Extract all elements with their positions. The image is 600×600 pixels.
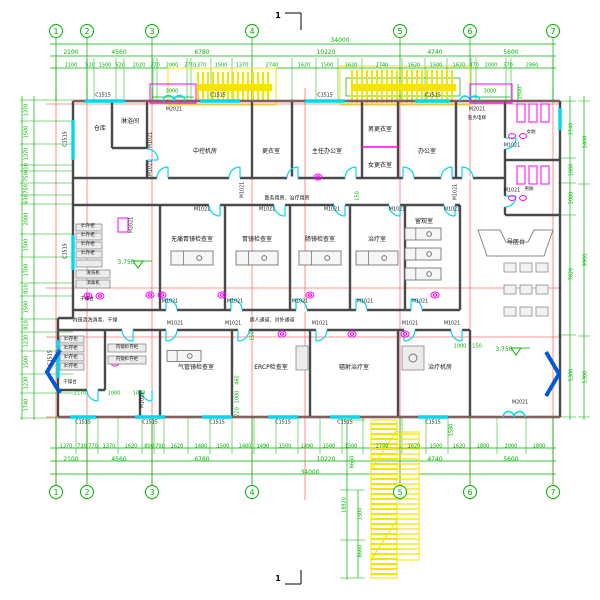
window-tag: C1515: [95, 95, 111, 100]
room-label: 治疗机房: [428, 365, 452, 371]
dim-label: 2170: [74, 392, 87, 397]
room-label: 淋浴间: [121, 119, 139, 125]
room-label: 中控机房: [193, 149, 217, 155]
door-tag: M1021: [162, 301, 178, 306]
equip-label: 消毒机: [86, 282, 100, 287]
dim-label: 1620: [408, 445, 421, 450]
dim-label: 1230: [25, 335, 30, 348]
dim-label: 4560: [111, 50, 126, 56]
axis-number: 2: [80, 24, 94, 38]
dim-label: 1500: [25, 239, 30, 252]
window-tag: C1515: [337, 422, 353, 427]
equip-label: 女厕: [527, 131, 536, 136]
dim-label: 1700: [25, 264, 30, 277]
dim-label: 1500: [99, 64, 112, 69]
dim-label: 3000: [166, 90, 179, 95]
room-label: 男更衣室: [368, 127, 392, 133]
dim-label: 750: [25, 172, 30, 182]
dim-label: 7820: [570, 268, 575, 281]
dim-label: 8660: [359, 545, 364, 558]
equip-label: 贮存柜: [81, 252, 95, 257]
equip-label: 贮存柜: [64, 347, 78, 352]
dim-label: 5400: [584, 136, 589, 149]
dim-label: 1500: [321, 64, 334, 69]
door-tag: M1021: [242, 182, 247, 198]
dim-label: 1800: [477, 445, 490, 450]
dim-label: 3740: [570, 123, 575, 136]
door-tag: M1021: [504, 145, 520, 150]
axis-number: 6: [463, 24, 477, 38]
door-tag: M1021: [312, 323, 328, 328]
axis-number: 5: [393, 485, 407, 499]
dim-label: 810: [25, 284, 30, 294]
dim-label: 520: [85, 64, 95, 69]
dim-label: 1620: [453, 64, 466, 69]
door-tag: M1021: [150, 160, 155, 176]
dim-label: 1370: [194, 64, 207, 69]
equip-label: 贮存柜: [81, 243, 95, 248]
equip-label: 贮存柜: [81, 225, 95, 230]
dim-label: 1620: [453, 445, 466, 450]
dim-label: 1500: [25, 356, 30, 369]
dim-label: 800: [144, 445, 154, 450]
elevation-label: 3.750: [117, 260, 134, 266]
room-label: 留观室: [415, 219, 433, 225]
door-tag: M1021: [142, 392, 147, 408]
dim-label: 6780: [194, 50, 209, 56]
axis-number: 2: [80, 485, 94, 499]
dim-label: 5600: [503, 457, 518, 463]
elevation-label: 3.750: [495, 347, 512, 353]
axis-number: 5: [393, 24, 407, 38]
dim-label: 1500: [25, 301, 30, 314]
door-tag: M1021: [504, 190, 520, 195]
dim-label: 2860: [526, 64, 539, 69]
dim-label: 1500: [217, 445, 230, 450]
window-tag: C1515: [275, 422, 291, 427]
window-tag: C1515: [65, 243, 70, 259]
dim-label: 220: [236, 407, 241, 417]
axis-number: 4: [245, 24, 259, 38]
dim-label: 2000: [505, 445, 518, 450]
dim-label: 750: [25, 184, 30, 194]
room-label: 仓库: [94, 126, 106, 132]
equip-label: 干燥台: [63, 381, 77, 386]
dim-label: 1230: [25, 377, 30, 390]
axis-number: 1: [49, 485, 63, 499]
dim-label: 1000: [236, 391, 241, 404]
dim-label: 1490: [257, 445, 270, 450]
door-tag: M2021: [131, 217, 136, 233]
window-tag: C1515: [65, 131, 70, 147]
dim-label: 1490: [301, 445, 314, 450]
dim-label: 1620: [345, 64, 358, 69]
dim-label: 1800: [533, 445, 546, 450]
dim-label: 2740: [376, 64, 389, 69]
dim-label: 2020: [133, 64, 146, 69]
dim-label: 1000: [108, 392, 121, 397]
door-tag: M1021: [324, 209, 340, 214]
axis-number: 7: [546, 24, 560, 38]
dim-label: 1370: [25, 104, 30, 117]
dim-label: 1500: [345, 445, 358, 450]
dim-label: 1500: [323, 445, 336, 450]
dim-label: 150: [251, 331, 256, 341]
door-tag: M1021: [389, 209, 405, 214]
dim-label: 2100: [63, 457, 78, 463]
room-label: 胃镜检查室: [242, 237, 272, 243]
room-label: 女更衣室: [368, 163, 392, 169]
dim-label: 2080: [570, 192, 575, 205]
door-tag: M1021: [444, 209, 460, 214]
section-mark: 1: [275, 12, 281, 20]
equip-label: 贮存柜: [64, 338, 78, 343]
door-tag: M1021: [194, 209, 210, 214]
dim-label: 34000: [300, 470, 319, 476]
dim-label: 10220: [316, 457, 335, 463]
dim-label: 1480: [195, 445, 208, 450]
door-tag: M2021: [512, 402, 528, 407]
dim-label: 8660: [351, 456, 356, 469]
axis-number: 3: [145, 485, 159, 499]
axis-number: 3: [145, 24, 159, 38]
room-label: 主任办公室: [312, 149, 342, 155]
dim-label: 370: [503, 64, 513, 69]
dim-label: 270: [150, 64, 160, 69]
dim-label: 462: [236, 375, 241, 385]
dim-label: 1370: [60, 445, 73, 450]
window-tag: C1515: [50, 350, 55, 366]
dim-label: 270: [184, 64, 194, 69]
dim-label: 4560: [111, 457, 126, 463]
dim-label: 5300: [570, 369, 575, 382]
window-tag: C1515: [317, 95, 333, 100]
dim-label: 1500: [359, 508, 364, 521]
room-label: 气管镜检查室: [178, 365, 214, 371]
window-tag: C1515: [209, 422, 225, 427]
dim-label: 730: [77, 445, 87, 450]
door-tag: M1021: [225, 323, 241, 328]
room-label: ERCP检查室: [254, 365, 287, 371]
dim-label: 5600: [503, 50, 518, 56]
dim-label: 1620: [125, 445, 138, 450]
dim-label: 1500: [519, 87, 524, 100]
dim-label: 150: [356, 191, 361, 201]
corridor-label: 内镜清洗消毒、干燥: [72, 319, 117, 324]
dim-label: 1500: [430, 64, 443, 69]
dim-label: 2000: [25, 213, 30, 226]
dim-label: 630: [25, 194, 30, 204]
window-tag: C1515: [425, 95, 441, 100]
dim-label: 1480: [239, 445, 252, 450]
dim-label: 2100: [65, 64, 78, 69]
dim-label: 1000: [454, 345, 467, 350]
door-tag: M1021: [167, 323, 183, 328]
corridor-label: 病人通道、对外通道: [249, 319, 294, 324]
dim-label: 2740: [266, 64, 279, 69]
door-tag: M1021: [455, 184, 460, 200]
equip-label: 医务电梯: [468, 117, 486, 122]
window-tag: C1515: [425, 422, 441, 427]
door-tag: M1021: [402, 323, 418, 328]
axis-number: 7: [546, 485, 560, 499]
dim-label: 10220: [316, 50, 335, 56]
door-tag: M1021: [227, 301, 243, 306]
dim-label: 1620: [171, 445, 184, 450]
dim-label: 770: [88, 445, 98, 450]
dim-label: 1500: [215, 64, 228, 69]
door-tag: M1021: [150, 132, 155, 148]
corridor-label: 医务用房、治疗用房: [264, 197, 309, 202]
dim-label: 1370: [236, 64, 249, 69]
door-tag: M2021: [469, 109, 485, 114]
dim-label: 1500: [430, 445, 443, 450]
room-label: 治疗室: [368, 237, 386, 243]
room-label: 更衣室: [262, 149, 280, 155]
axis-number: 6: [463, 485, 477, 499]
dim-label: 18820: [343, 497, 348, 513]
dim-label: 1740: [25, 399, 30, 412]
dim-label: 1370: [25, 148, 30, 161]
room-label: 无痛胃镜检查室: [171, 237, 213, 243]
dim-label: 700: [155, 445, 165, 450]
dim-label: 34000: [330, 38, 349, 44]
dim-label: 2000: [485, 64, 498, 69]
door-tag: M1021: [412, 301, 428, 306]
equip-label: 干燥台: [80, 298, 94, 303]
window-tag: C1515: [142, 422, 158, 427]
window-tag: C1515: [210, 95, 226, 100]
room-label: 导医台: [507, 240, 525, 246]
dim-label: 2000: [166, 64, 179, 69]
dim-label: 6780: [194, 457, 209, 463]
dim-label: 1370: [103, 445, 116, 450]
dim-label: 2100: [63, 50, 78, 56]
dim-label: 370: [469, 64, 479, 69]
dim-label: 150: [472, 345, 482, 350]
dim-label: 1660: [570, 164, 575, 177]
dim-label: 4740: [427, 457, 442, 463]
door-tag: M1021: [259, 209, 275, 214]
dim-label: 9900: [584, 254, 589, 267]
room-label: 办公室: [418, 149, 436, 155]
equip-label: 贮存柜: [64, 356, 78, 361]
axis-number: 1: [49, 24, 63, 38]
section-mark: 1: [275, 575, 281, 583]
dim-label: 1620: [298, 64, 311, 69]
equip-label: 内镜贮存柜: [116, 346, 139, 351]
equip-label: 内镜贮存柜: [116, 358, 139, 363]
door-tag: M1021: [444, 323, 460, 328]
dim-label: 1620: [408, 64, 421, 69]
dim-label: 3000: [484, 90, 497, 95]
equip-label: 贮存柜: [81, 234, 95, 239]
dim-label: 810: [25, 320, 30, 330]
axis-number: 4: [245, 485, 259, 499]
dim-label: 1500: [25, 126, 30, 139]
equip-label: 贮存柜: [64, 365, 78, 370]
dim-label: 2740: [376, 445, 389, 450]
room-label: 肠镜检查室: [305, 237, 335, 243]
window-tag: C1515: [75, 422, 91, 427]
equip-label: 清洗机: [86, 272, 100, 277]
dim-label: 5300: [584, 371, 589, 384]
door-tag: M1021: [292, 301, 308, 306]
door-tag: M1021: [357, 301, 373, 306]
door-tag: M2021: [166, 109, 182, 114]
dim-label: 1500: [279, 445, 292, 450]
dim-label: 520: [115, 64, 125, 69]
dim-label: 4740: [427, 50, 442, 56]
floor-plan-canvas: 3400021004560678010220474056002100456067…: [0, 0, 600, 600]
room-label: 辐射治疗室: [339, 365, 369, 371]
dim-label: 1580: [450, 424, 455, 437]
equip-label: 男厕: [525, 188, 534, 193]
